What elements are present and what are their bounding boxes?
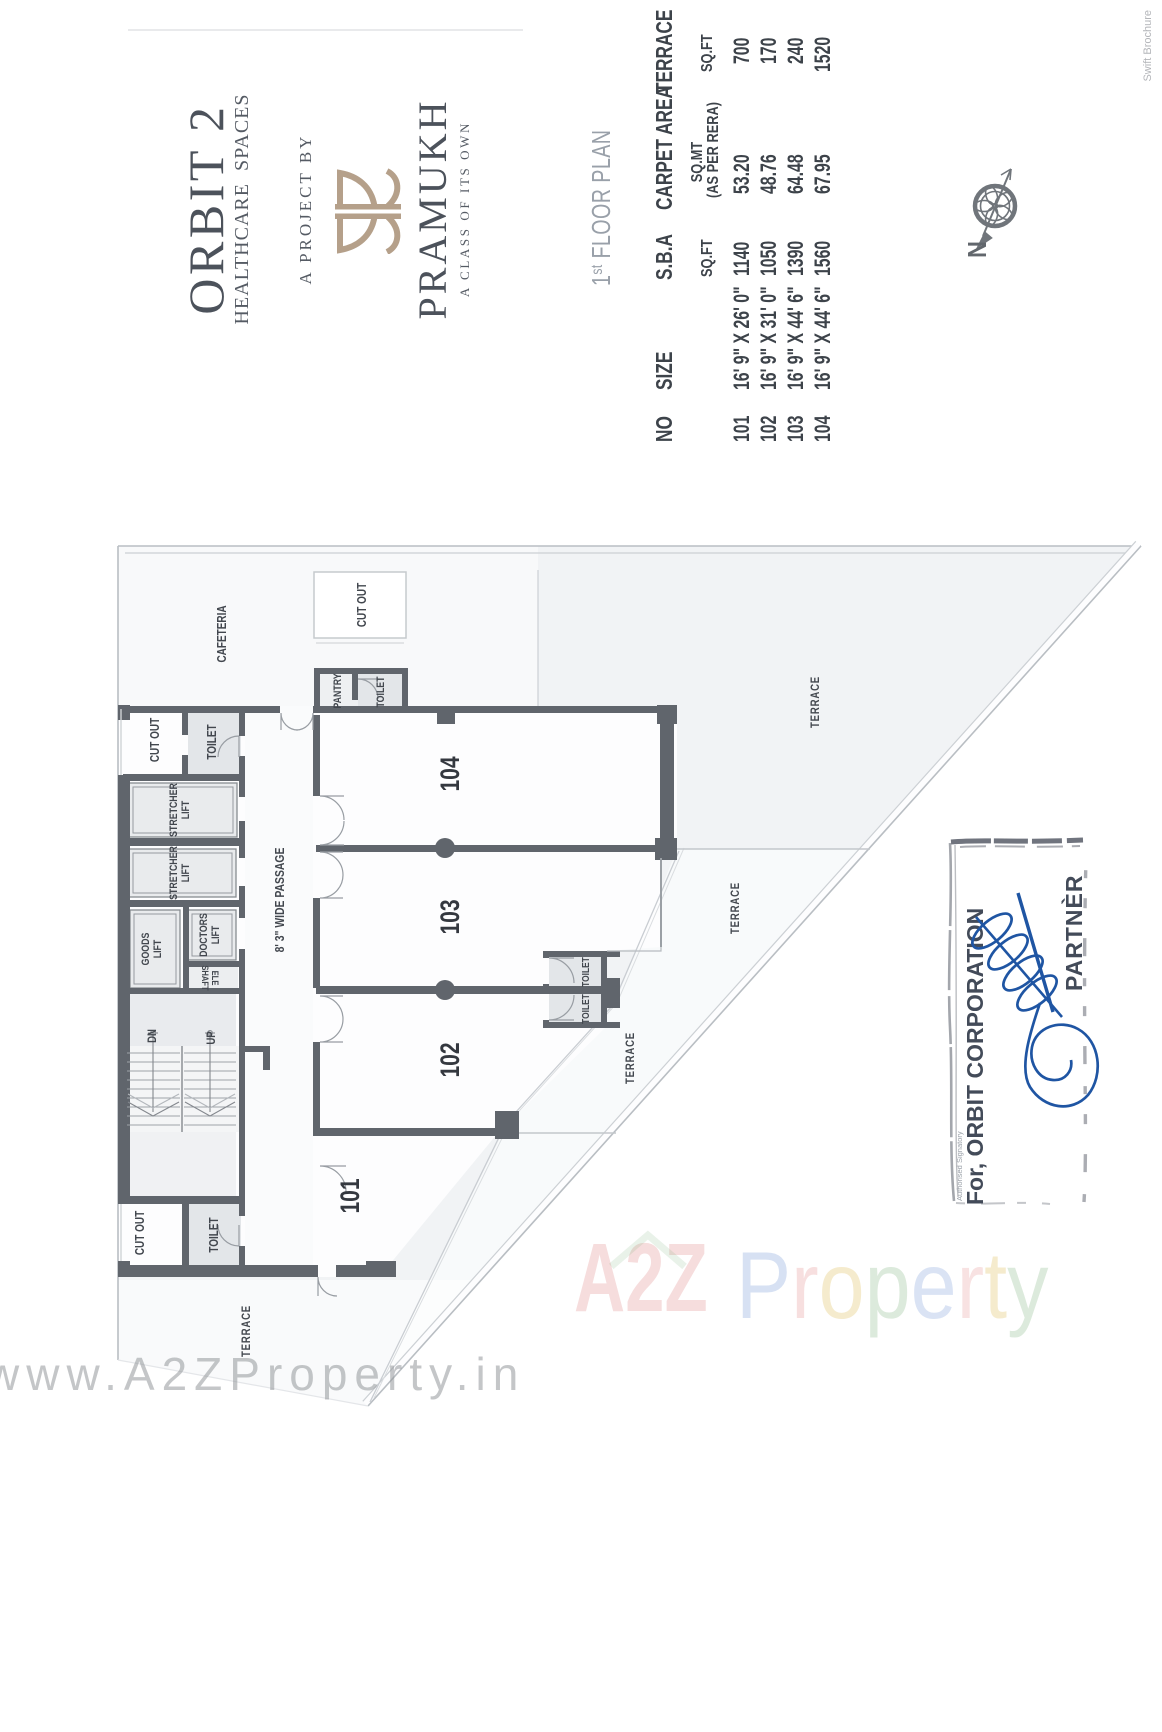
svg-text:PARTNÈR: PARTNÈR: [1060, 875, 1087, 991]
svg-text:Authorised Signatory: Authorised Signatory: [955, 1131, 964, 1201]
svg-text:For, ORBIT CORPORATION: For, ORBIT CORPORATION: [962, 908, 988, 1205]
